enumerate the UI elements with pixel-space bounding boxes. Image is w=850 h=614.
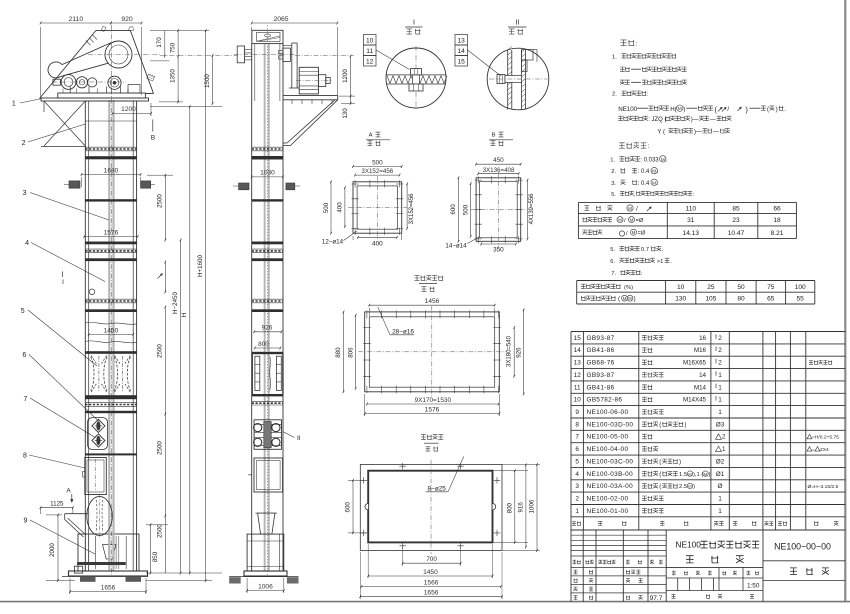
- svg-text:1: 1: [12, 101, 16, 108]
- svg-text:130: 130: [342, 108, 349, 119]
- svg-text:2000: 2000: [49, 543, 56, 557]
- svg-text:600: 600: [345, 502, 352, 513]
- svg-text:: 0.4: : 0.4: [638, 169, 650, 175]
- svg-text:/: /: [636, 206, 638, 213]
- svg-text:B: B: [492, 133, 496, 139]
- svg-text:M14X45: M14X45: [683, 397, 707, 404]
- svg-text:NE100-06-00: NE100-06-00: [587, 409, 629, 416]
- svg-text:3X152=456: 3X152=456: [409, 193, 415, 225]
- svg-text:105: 105: [705, 296, 716, 303]
- svg-text:—: —: [710, 117, 716, 123]
- svg-text:5.: 5.: [611, 192, 616, 198]
- svg-text:NE100-03C-00: NE100-03C-00: [587, 458, 634, 465]
- svg-text:GB5782-86: GB5782-86: [587, 397, 623, 404]
- svg-text:GB68-76: GB68-76: [587, 360, 615, 367]
- svg-text:14: 14: [574, 347, 582, 354]
- svg-text:850: 850: [152, 551, 159, 562]
- svg-text:800: 800: [506, 502, 513, 513]
- svg-text:12: 12: [574, 372, 582, 379]
- svg-text:23: 23: [732, 217, 740, 224]
- svg-text:1680: 1680: [104, 167, 119, 174]
- svg-text:66: 66: [773, 206, 781, 213]
- svg-text:Ø1: Ø1: [716, 471, 725, 478]
- svg-text:)—: )—: [691, 117, 699, 123]
- svg-text:97.7: 97.7: [650, 595, 663, 602]
- svg-text:H: H: [181, 313, 188, 317]
- svg-text:NE100: NE100: [618, 106, 637, 113]
- svg-text:916: 916: [517, 502, 524, 513]
- svg-text:GB41-86: GB41-86: [587, 347, 615, 354]
- svg-text:1: 1: [718, 496, 722, 503]
- svg-text:Ø3: Ø3: [716, 421, 725, 428]
- svg-text:M: M: [630, 218, 634, 223]
- svg-text:400: 400: [372, 240, 383, 247]
- svg-text:7: 7: [575, 434, 579, 441]
- svg-text:7: 7: [23, 396, 27, 403]
- svg-text:1200: 1200: [342, 69, 349, 83]
- svg-text:10: 10: [574, 397, 582, 404]
- svg-text:2: 2: [22, 140, 26, 147]
- svg-text:2: 2: [718, 347, 722, 354]
- svg-text:500: 500: [323, 202, 330, 213]
- svg-text:1006: 1006: [258, 583, 273, 590]
- svg-text:I: I: [413, 20, 415, 27]
- svg-text:75: 75: [767, 284, 775, 291]
- svg-text:1656: 1656: [424, 590, 439, 597]
- svg-text:>1: >1: [657, 259, 664, 265]
- svg-text:31: 31: [687, 217, 695, 224]
- svg-text:=: =: [812, 448, 815, 453]
- svg-text:3X136=408: 3X136=408: [483, 167, 515, 174]
- svg-text:B: B: [151, 135, 156, 142]
- svg-text:1: 1: [718, 384, 722, 391]
- svg-text:4: 4: [575, 471, 579, 478]
- svg-text:2: 2: [722, 434, 726, 441]
- svg-text:25: 25: [707, 284, 715, 291]
- svg-text:500: 500: [372, 159, 383, 166]
- svg-text:14: 14: [458, 48, 466, 55]
- svg-text:800: 800: [258, 341, 269, 348]
- svg-text:11: 11: [366, 48, 373, 55]
- svg-text:926: 926: [515, 347, 522, 358]
- svg-text:Ø=H−3.15/2.5: Ø=H−3.15/2.5: [808, 484, 839, 490]
- svg-text:M14: M14: [694, 384, 707, 391]
- svg-text:M: M: [704, 471, 707, 476]
- svg-text:13: 13: [458, 38, 466, 45]
- svg-text:16: 16: [699, 335, 706, 342]
- svg-text:1.: 1.: [612, 54, 617, 60]
- svg-text:/: /: [727, 106, 729, 113]
- svg-text:1566: 1566: [424, 579, 439, 586]
- svg-text:): ): [684, 421, 686, 428]
- svg-text:1576: 1576: [425, 406, 440, 413]
- svg-text:2.: 2.: [612, 92, 617, 98]
- svg-text:2: 2: [718, 335, 722, 342]
- svg-text:1006: 1006: [529, 499, 536, 513]
- svg-text:8: 8: [575, 421, 579, 428]
- svg-text:2: 2: [718, 360, 722, 367]
- svg-text:): ): [634, 296, 636, 303]
- svg-text:: JZQ (: : JZQ (: [648, 117, 666, 123]
- svg-text:M: M: [688, 484, 691, 489]
- svg-text:2: 2: [575, 496, 579, 503]
- svg-text:Y (: Y (: [657, 129, 665, 135]
- svg-text:14: 14: [699, 372, 706, 379]
- svg-text:6.: 6.: [610, 259, 615, 265]
- svg-text:),1 (: ),1 (: [693, 472, 703, 478]
- svg-text:M: M: [628, 206, 632, 211]
- svg-text:A: A: [369, 133, 373, 139]
- svg-text:M: M: [618, 218, 622, 223]
- svg-text:10: 10: [677, 284, 685, 291]
- svg-text:2110: 2110: [68, 16, 83, 23]
- svg-text:926: 926: [262, 325, 273, 332]
- svg-text:1456: 1456: [425, 298, 440, 305]
- svg-text:10.47: 10.47: [728, 230, 745, 237]
- svg-text:1450: 1450: [423, 569, 438, 576]
- svg-text:3X180=540: 3X180=540: [506, 335, 512, 367]
- svg-text:6: 6: [22, 352, 26, 359]
- svg-text:700: 700: [426, 556, 437, 563]
- svg-text:880: 880: [335, 347, 342, 358]
- svg-text::: :: [636, 41, 638, 48]
- svg-text:NE100-02-00: NE100-02-00: [587, 496, 629, 503]
- svg-text:0.7: 0.7: [641, 247, 649, 253]
- svg-text:): ): [709, 472, 711, 478]
- svg-text:15: 15: [458, 59, 466, 66]
- svg-text:M: M: [652, 169, 656, 174]
- svg-text:=Ø: =Ø: [636, 218, 644, 224]
- svg-text:4X139=556: 4X139=556: [529, 193, 535, 225]
- svg-text:M: M: [652, 180, 656, 185]
- svg-text:1030: 1030: [260, 170, 275, 177]
- svg-text:II: II: [297, 435, 301, 442]
- svg-text:1125: 1125: [50, 500, 64, 507]
- svg-text:14.13: 14.13: [683, 230, 700, 237]
- svg-text:A: A: [66, 488, 71, 495]
- svg-text:NE100-03A-00: NE100-03A-00: [587, 483, 634, 490]
- svg-text:H+1600: H+1600: [197, 255, 204, 277]
- svg-text:5: 5: [575, 458, 579, 465]
- svg-text:NE100-04-00: NE100-04-00: [587, 446, 629, 453]
- svg-text:1350: 1350: [170, 69, 177, 83]
- svg-text:I: I: [62, 279, 64, 286]
- svg-text:2X4: 2X4: [820, 447, 829, 453]
- svg-text:GB93-87: GB93-87: [587, 335, 615, 342]
- svg-text:2500: 2500: [157, 344, 164, 358]
- svg-text:1500: 1500: [204, 74, 211, 88]
- svg-text:1: 1: [722, 446, 726, 453]
- svg-text:M: M: [661, 157, 665, 162]
- svg-text:II: II: [516, 20, 520, 27]
- svg-text:GB93-87: GB93-87: [587, 372, 615, 379]
- svg-text:6: 6: [575, 446, 579, 453]
- svg-text:8: 8: [23, 453, 27, 460]
- svg-text:3: 3: [23, 190, 27, 197]
- svg-text:750: 750: [169, 42, 176, 53]
- svg-text:8−ø25: 8−ø25: [428, 485, 447, 492]
- svg-text:13: 13: [574, 360, 582, 367]
- svg-text:1:50: 1:50: [747, 583, 760, 590]
- svg-text:NE100-05-00: NE100-05-00: [587, 434, 629, 441]
- svg-text:M16: M16: [694, 347, 707, 354]
- svg-text:1: 1: [718, 508, 722, 515]
- svg-text:): ): [693, 484, 695, 490]
- svg-text:Ø: Ø: [718, 483, 723, 490]
- svg-text:11: 11: [574, 384, 581, 391]
- svg-text:65: 65: [767, 296, 775, 303]
- svg-text:170: 170: [156, 37, 163, 48]
- svg-text:: 0.033: : 0.033: [640, 157, 659, 163]
- svg-text:: 0.4: : 0.4: [638, 181, 650, 187]
- svg-text:Ø2: Ø2: [716, 458, 725, 465]
- svg-text:(%): (%): [624, 285, 633, 291]
- svg-text::: :: [648, 143, 650, 150]
- svg-text:NE100-03B-00: NE100-03B-00: [587, 471, 634, 478]
- svg-text:5.: 5.: [610, 247, 615, 253]
- svg-text:15: 15: [574, 335, 582, 342]
- svg-text:4: 4: [25, 240, 29, 247]
- svg-text:2.5: 2.5: [679, 484, 687, 490]
- svg-text:NE100−00−00: NE100−00−00: [774, 542, 831, 552]
- svg-text:2.: 2.: [611, 169, 616, 175]
- svg-text:1.5: 1.5: [679, 472, 687, 478]
- svg-text:—: —: [713, 129, 719, 135]
- svg-text:1: 1: [575, 508, 579, 515]
- svg-text:50: 50: [737, 284, 745, 291]
- svg-text:1576: 1576: [104, 229, 119, 236]
- svg-text:600: 600: [450, 204, 457, 215]
- svg-text:500: 500: [462, 204, 469, 215]
- svg-text:110: 110: [686, 206, 697, 213]
- svg-text:M: M: [623, 296, 627, 301]
- svg-text:): ): [679, 458, 681, 465]
- svg-text:1200: 1200: [121, 106, 136, 113]
- svg-text:1.: 1.: [610, 157, 615, 163]
- svg-text:9X170=1530: 9X170=1530: [415, 397, 452, 404]
- svg-text:1450: 1450: [104, 327, 119, 334]
- svg-text:GB41-86: GB41-86: [587, 384, 615, 391]
- svg-text:55: 55: [797, 296, 805, 303]
- svg-text:5: 5: [21, 308, 25, 315]
- svg-text:M: M: [632, 230, 636, 235]
- svg-text:9: 9: [575, 409, 579, 416]
- svg-text:3.: 3.: [611, 181, 616, 187]
- svg-text:12: 12: [366, 59, 374, 66]
- svg-text:10: 10: [366, 38, 374, 45]
- svg-text:806: 806: [347, 347, 354, 358]
- svg-text:)—: )—: [694, 129, 702, 135]
- svg-text:H−2450: H−2450: [172, 292, 179, 314]
- svg-text:450: 450: [493, 157, 504, 164]
- svg-text:2065: 2065: [273, 16, 288, 23]
- svg-text:85: 85: [732, 206, 740, 213]
- svg-text:8.21: 8.21: [771, 230, 784, 237]
- svg-text:2500: 2500: [157, 524, 164, 538]
- svg-text:): ): [776, 106, 778, 113]
- svg-text:14−ø14: 14−ø14: [445, 242, 467, 249]
- svg-text:80: 80: [737, 296, 745, 303]
- svg-text:NE100: NE100: [676, 540, 702, 550]
- svg-text:18: 18: [773, 217, 781, 224]
- svg-text:100: 100: [795, 284, 806, 291]
- svg-text:1: 1: [718, 372, 722, 379]
- svg-text:=H/0.2+5.75: =H/0.2+5.75: [812, 434, 839, 440]
- svg-text:7.: 7.: [611, 271, 616, 277]
- svg-text:3X152=456: 3X152=456: [361, 168, 393, 175]
- svg-text:400: 400: [337, 202, 344, 213]
- svg-text:12−ø14: 12−ø14: [322, 239, 344, 246]
- svg-text:130: 130: [675, 296, 686, 303]
- svg-text:350: 350: [493, 246, 504, 253]
- svg-text:3: 3: [575, 483, 579, 490]
- svg-text:.: .: [784, 106, 786, 113]
- svg-text:28−ø16: 28−ø16: [392, 329, 414, 336]
- svg-text:1: 1: [718, 397, 722, 404]
- svg-text:9: 9: [23, 517, 27, 524]
- svg-text:2500: 2500: [157, 194, 164, 208]
- svg-text:1: 1: [718, 409, 722, 416]
- svg-text:NE100-03D-00: NE100-03D-00: [587, 421, 634, 428]
- svg-text:): ): [683, 106, 685, 113]
- svg-text:M: M: [678, 106, 682, 111]
- svg-text:2500: 2500: [157, 441, 164, 455]
- svg-text:M: M: [688, 471, 691, 476]
- svg-text:=Ø: =Ø: [638, 231, 646, 237]
- svg-text:M: M: [628, 296, 632, 301]
- svg-text:920: 920: [121, 16, 133, 23]
- svg-text:M16X65: M16X65: [683, 360, 707, 367]
- svg-text:NE100-01-00: NE100-01-00: [587, 508, 629, 515]
- svg-text:1656: 1656: [101, 584, 116, 591]
